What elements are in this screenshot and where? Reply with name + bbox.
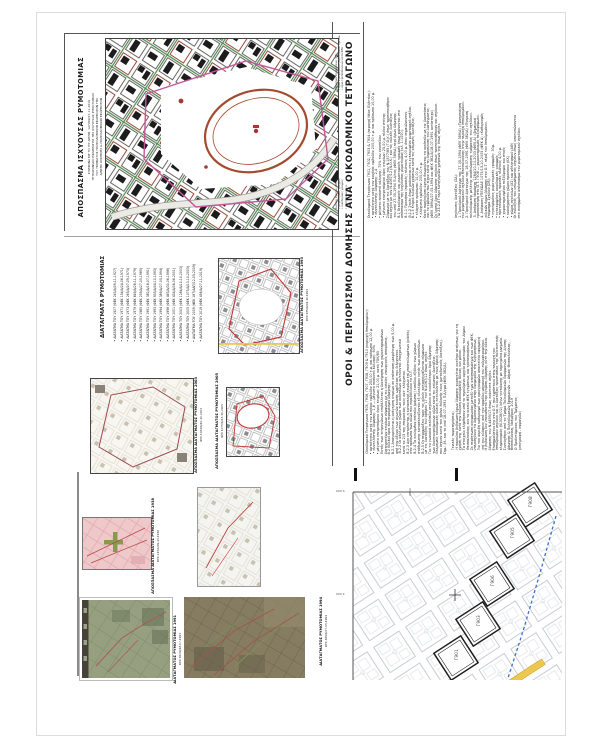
oroi-line: (υπογραφή - σφραγίδα) bbox=[519, 411, 522, 450]
title-line: Δ/ΝΣΗΣ ΔΟΜΗΣΗΣ & ΠΟΛΕΟΔΟΜΙΚΩΝ ΕΦΑΡΜΟΓΩΝ bbox=[100, 98, 103, 175]
caption-2005-fek: ΦΕΚ 1075/Δ/13-10-2005 bbox=[221, 404, 224, 438]
map-current-rymotomia bbox=[105, 38, 339, 230]
extract-small-drawing bbox=[198, 488, 260, 586]
oroi-block-b: Οικοδομικά Τετράγωνα Γ905, Γ906, Γ907, Γ… bbox=[366, 230, 447, 454]
diatagma-item: ΔΙΑΤΑΓΜΑ ΤΟΥ 1971 (ΦΕΚ 154/Δ/24-06-1971) bbox=[121, 268, 124, 342]
caption-1991: ΔΙΑΤΑΓΜΑΤΟΣ ΡΥΜΟΤΟΜΙΑΣ 1991 ΦΕΚ 382/Δ/18… bbox=[174, 620, 181, 678]
diatagma-item: ΔΙΑΤΑΓΜΑ ΤΟΥ 2003 (ΦΕΚ 1284/Δ/10-10-2003… bbox=[180, 266, 183, 342]
caption-1938: ΑΠΟΣΠΑΣΜΑ ΔΙΑΤΑΓΜΑΤΟΣ ΡΥΜΟΤΟΜΙΑΣ 1938 ΦΕ… bbox=[152, 504, 159, 588]
sheet-title: ΑΠΟΣΠΑΣΜΑ ΙΣΧΥΟΥΣΑΣ ΡΥΜΟΤΟΜΙΑΣ bbox=[78, 57, 85, 217]
diatagmata-heading: ΔΙΑΤΑΓΜΑΤΑ ΡΥΜΟΤΟΜΙΑΣ bbox=[101, 258, 106, 338]
grid-label-2: 2.000 bbox=[336, 592, 345, 596]
caption-1938-fek: ΦΕΚ 243/Α/09-11-1938 bbox=[157, 530, 160, 562]
photo-map-1991 bbox=[80, 598, 172, 680]
extract-1993-drawing bbox=[219, 259, 299, 353]
extract-2003-drawing bbox=[91, 379, 193, 473]
oroi-line: στο συνημμένο απόσπασμα του ρυμοτομικού … bbox=[518, 127, 521, 218]
caption-1994-fek: ΦΕΚ 389/Δ/27-05-1994 bbox=[325, 615, 328, 647]
map-extract-1938 bbox=[82, 517, 152, 570]
extract-1938-drawing bbox=[83, 518, 151, 569]
scanned-planning-sheet: { "colors": { "green": "#4c8a4c", "green… bbox=[0, 0, 600, 747]
diatagmata-list: ΔΙΑΤΑΓΜΑ ΤΟΥ 1927 (ΦΕΚ 243/Α/09-11-1927)… bbox=[114, 248, 203, 342]
note-line: • όρια τροποποιήσεων κατά ΦΕΚ bbox=[342, 47, 345, 90]
rule-top bbox=[64, 33, 360, 34]
title-block: ΑΠΟΣΠΑΣΜΑ ΙΣΧΥΟΥΣΑΣ ΡΥΜΟΤΟΜΙΑΣ ΣΥΜΦΩΝΑ Μ… bbox=[78, 60, 108, 214]
extract-2005-drawing bbox=[227, 388, 279, 456]
caption-2003: ΑΠΟΣΠΑΣΜΑ ΔΙΑΤΑΓΜΑΤΟΣ ΡΥΜΟΤΟΜΙΑΣ 2003 ΦΕ… bbox=[195, 380, 202, 470]
note-line: • πλάτη οδών σε μ. bbox=[346, 184, 349, 209]
block-label: Γ903 bbox=[476, 615, 481, 626]
caption-1991-fek: ΦΕΚ 382/Δ/18-07-1991 bbox=[179, 633, 182, 665]
rule-bottom-left bbox=[77, 472, 79, 676]
block-label: Γ901 bbox=[454, 649, 459, 660]
caption-2003-fek: ΦΕΚ 1284/Δ/10-10-2003 bbox=[200, 408, 203, 442]
diatagma-item: ΔΙΑΤΑΓΜΑ ΤΟΥ 1985 (ΦΕΚ 239/Δ/27-05-1985) bbox=[140, 268, 143, 342]
oroi-block-a: Οικοδομικά Τετράγωνα Γ901, Γ902, Γ903 & … bbox=[368, 50, 442, 218]
diatagma-item: ΔΙΑΤΑΓΜΑ ΤΟΥ 1993 (ΦΕΚ 935/Δ/04-10-1993) bbox=[154, 268, 157, 342]
oroi-line: ΠΔ 23-2-87 περί κατηγοριών χρήσεων γης ό… bbox=[438, 123, 441, 218]
photo-map-sepia bbox=[184, 597, 305, 678]
diatagma-item: ΔΙΑΤΑΓΜΑ ΤΟΥ 1994 (ΦΕΚ 389/Δ/27-05-1994) bbox=[160, 268, 163, 342]
block-label: Γ906 bbox=[490, 575, 495, 586]
map-extract-2005 bbox=[226, 387, 280, 457]
city-map-drawing bbox=[106, 39, 338, 229]
caption-1994: ΔΙΑΤΑΓΜΑΤΟΣ ΡΥΜΟΤΟΜΙΑΣ 1994 ΦΕΚ 389/Δ/27… bbox=[320, 588, 327, 674]
map-extract-small bbox=[197, 487, 261, 587]
rule-row2 bbox=[64, 236, 360, 237]
grid-label-1: 5.000 bbox=[336, 489, 345, 493]
oroi-heading: ΟΡΟΙ & ΠΕΡΙΟΡΙΣΜΟΙ ΔΟΜΗΣΗΣ ΑΝΑ ΟΙΚΟΔΟΜΙΚ… bbox=[346, 106, 355, 386]
photo-sepia-drawing bbox=[184, 597, 305, 678]
diatagma-item: ΔΙΑΤΑΓΜΑ ΤΟΥ 1979 (ΦΕΚ 649/Δ/28-11-1979) bbox=[134, 268, 137, 342]
caption-1993-fek: ΦΕΚ 935/Δ/04-10-1993 bbox=[306, 289, 309, 321]
photo-1991-drawing bbox=[82, 600, 170, 678]
map-tick-1 bbox=[354, 468, 357, 481]
map-extract-2003 bbox=[90, 378, 194, 474]
diatagma-item: ΔΙΑΤΑΓΜΑ ΤΟΥ 2009 (ΦΕΚ 187/ΑΑΠ/12-05-200… bbox=[193, 264, 196, 342]
diatagma-item: ΔΙΑΤΑΓΜΑ ΤΟΥ 2005 (ΦΕΚ 1075/Δ/13-10-2005… bbox=[187, 266, 190, 342]
block-label: Γ908 bbox=[528, 496, 533, 507]
diatagma-item: ΔΙΑΤΑΓΜΑ ΤΟΥ 2001 (ΦΕΚ 434/Δ/06-06-2001) bbox=[173, 268, 176, 342]
map-extract-1993 bbox=[218, 258, 300, 354]
diatagma-item: ΔΙΑΤΑΓΜΑ ΤΟΥ 1998 (ΦΕΚ 463/Δ/30-06-1998) bbox=[167, 268, 170, 342]
caption-1993: ΑΠΟΣΠΑΣΜΑ ΔΙΑΤΑΓΜΑΤΟΣ ΡΥΜΟΤΟΜΙΑΣ 1993 ΦΕ… bbox=[301, 260, 308, 350]
diatagma-item: ΔΙΑΤΑΓΜΑ ΤΟΥ 1991 (ΦΕΚ 382/Δ/18-07-1991) bbox=[147, 268, 150, 342]
oroi-line: Σημ.: βλ. και το από 18-07-1991 Π.Δ/γμα … bbox=[444, 362, 447, 454]
oroi-block-c: Ισχύουσες διατάξεις (ΣΔ):1. Προεδρικό Δι… bbox=[455, 46, 521, 218]
diatagma-item: ΔΙΑΤΑΓΜΑ ΤΟΥ 2019 (ΦΕΚ 456/Δ/27-11-2019) bbox=[200, 268, 203, 342]
diatagma-item: ΔΙΑΤΑΓΜΑ ΤΟΥ 1973 (ΦΕΚ 265/Δ/07-09-1973) bbox=[127, 268, 130, 342]
diatagma-item: ΔΙΑΤΑΓΜΑ ΤΟΥ 1927 (ΦΕΚ 243/Α/09-11-1927) bbox=[114, 268, 117, 342]
rule-left bbox=[64, 33, 65, 231]
caption-2005: ΑΠΟΣΠΑΣΜΑ ΔΙΑΤΑΓΜΑΤΟΣ ΡΥΜΟΤΟΜΙΑΣ 2005 ΦΕ… bbox=[216, 388, 223, 454]
map-tick-2 bbox=[455, 468, 458, 481]
oroi-note-mid: Κωδικοί Σχεδίου (ΣΒ):• ρυμοτομικές γραμμ… bbox=[336, 163, 348, 209]
block-label: Γ905 bbox=[510, 527, 515, 538]
oroi-note-top: Υπόμνημα Σημειώσεων (ΣΒ):• όρια εγκεκριμ… bbox=[336, 56, 345, 90]
oroi-block-d: Γενικές παρατηρήσεις:Η παρούσα βεβαίωση … bbox=[452, 228, 522, 450]
divider-right bbox=[363, 22, 364, 466]
